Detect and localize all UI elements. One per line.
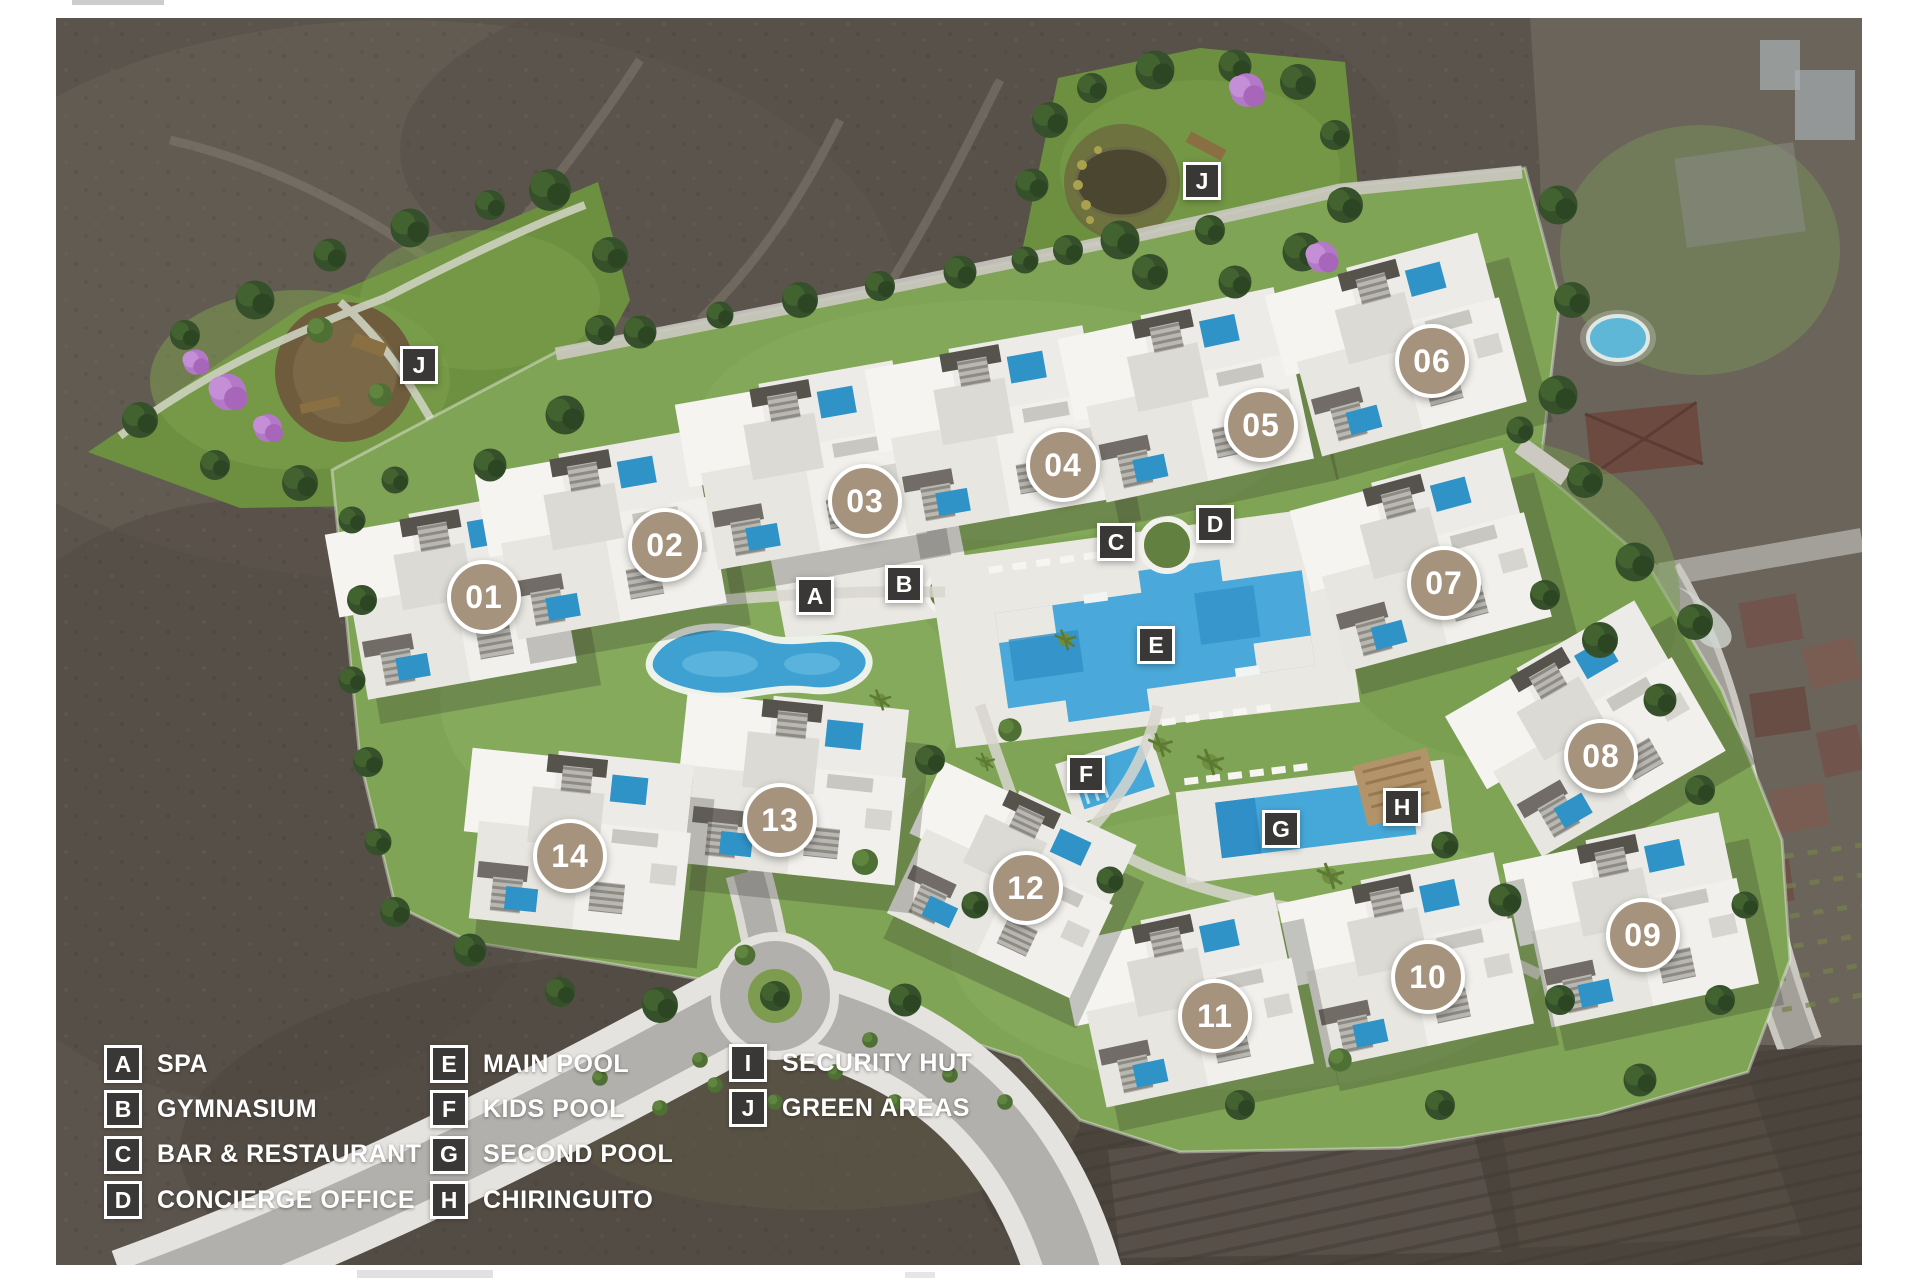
building-marker-01[interactable]: 01 [447,560,521,634]
building-marker-04[interactable]: 04 [1026,428,1100,502]
top-edge-artifact [72,0,164,5]
amenity-marker-F-kids-pool[interactable]: F [1067,755,1105,793]
amenity-marker-E-main-pool[interactable]: E [1137,626,1175,664]
building-marker-07[interactable]: 07 [1407,546,1481,620]
bottom-edge-artifact [357,1270,493,1278]
building-marker-12[interactable]: 12 [989,851,1063,925]
bottom-edge-artifact-2 [905,1272,935,1278]
building-marker-06[interactable]: 06 [1395,324,1469,398]
building-marker-09[interactable]: 09 [1606,898,1680,972]
site-plan-rendering [0,0,1920,1280]
amenity-marker-H-chiringuito[interactable]: H [1383,788,1421,826]
amenity-marker-B-gymnasium[interactable]: B [885,565,923,603]
building-marker-03[interactable]: 03 [828,464,902,538]
amenity-marker-G-second-pool[interactable]: G [1262,810,1300,848]
building-marker-14[interactable]: 14 [533,819,607,893]
masterplan-page: 0102030405060708091011121314ABCDEFGHJJ A… [0,0,1920,1280]
building-marker-13[interactable]: 13 [743,783,817,857]
amenity-marker-J-green-area-north[interactable]: J [1183,162,1221,200]
building-marker-02[interactable]: 02 [628,508,702,582]
building-marker-05[interactable]: 05 [1224,388,1298,462]
amenity-marker-A-spa[interactable]: A [796,577,834,615]
building-marker-11[interactable]: 11 [1178,979,1252,1053]
amenity-marker-D-concierge-office[interactable]: D [1196,505,1234,543]
building-marker-08[interactable]: 08 [1564,719,1638,793]
amenity-marker-J-green-area-west[interactable]: J [400,346,438,384]
building-marker-10[interactable]: 10 [1391,940,1465,1014]
amenity-marker-C-bar-restaurant[interactable]: C [1097,523,1135,561]
